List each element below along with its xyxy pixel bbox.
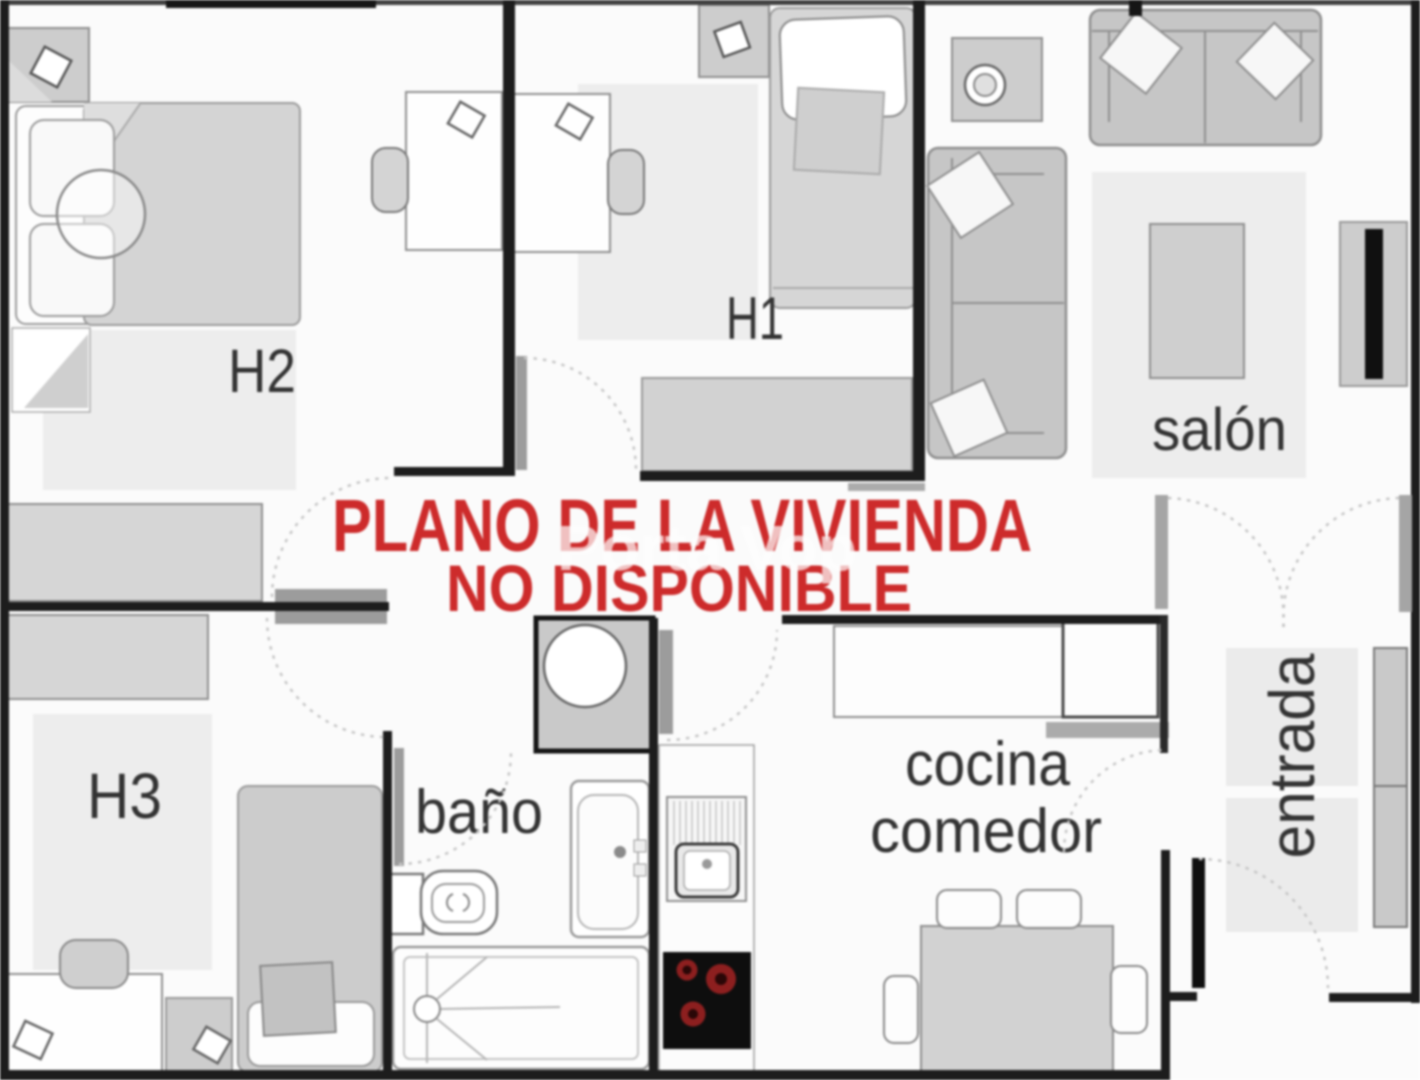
svg-text:salón: salón xyxy=(1152,396,1287,463)
svg-text:entrada: entrada xyxy=(1256,653,1328,858)
svg-text:H2: H2 xyxy=(228,337,296,405)
svg-text:cocina: cocina xyxy=(905,730,1070,799)
svg-text:Porta Vop: Porta Vop xyxy=(557,512,857,584)
svg-text:H3: H3 xyxy=(87,760,162,832)
svg-text:baño: baño xyxy=(415,778,543,847)
svg-text:H1: H1 xyxy=(726,285,784,352)
